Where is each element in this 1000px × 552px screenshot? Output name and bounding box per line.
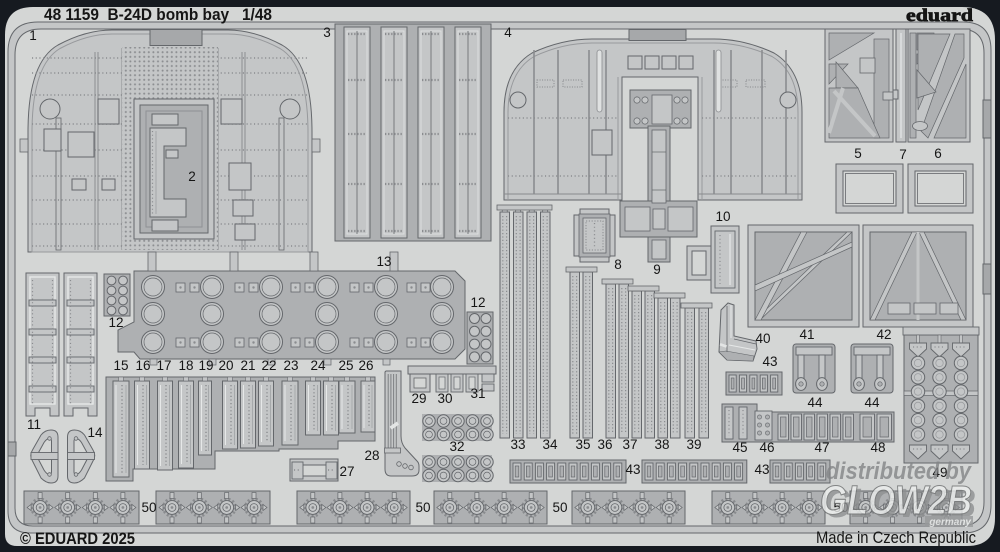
svg-text:21: 21 <box>240 358 255 373</box>
svg-text:33: 33 <box>510 437 525 452</box>
svg-text:1: 1 <box>29 28 37 43</box>
svg-text:2: 2 <box>188 169 196 184</box>
svg-text:9: 9 <box>653 262 661 277</box>
svg-text:27: 27 <box>339 464 354 479</box>
svg-text:43: 43 <box>625 462 640 477</box>
svg-text:43: 43 <box>762 354 777 369</box>
svg-text:24: 24 <box>310 358 326 373</box>
svg-text:41: 41 <box>799 327 814 342</box>
svg-text:germany: germany <box>928 517 971 528</box>
svg-text:48 1159 B-24D bomb bay 1/48: 48 1159 B-24D bomb bay 1/48 <box>44 5 272 24</box>
svg-text:11: 11 <box>27 417 41 432</box>
svg-text:32: 32 <box>449 439 464 454</box>
svg-text:8: 8 <box>614 257 622 272</box>
svg-text:43: 43 <box>754 462 769 477</box>
svg-text:37: 37 <box>622 437 637 452</box>
svg-text:12: 12 <box>108 315 123 330</box>
svg-text:48: 48 <box>870 440 885 455</box>
svg-text:Made in Czech Republic: Made in Czech Republic <box>816 528 976 547</box>
svg-text:36: 36 <box>597 437 612 452</box>
svg-text:6: 6 <box>934 146 942 161</box>
svg-text:10: 10 <box>715 209 730 224</box>
svg-text:26: 26 <box>358 358 373 373</box>
svg-text:© EDUARD 2025: © EDUARD 2025 <box>20 529 135 548</box>
svg-text:14: 14 <box>87 425 103 440</box>
svg-text:45: 45 <box>732 440 747 455</box>
svg-text:34: 34 <box>542 437 558 452</box>
svg-text:40: 40 <box>755 331 770 346</box>
svg-text:47: 47 <box>814 440 829 455</box>
svg-text:12: 12 <box>470 295 485 310</box>
svg-text:7: 7 <box>899 147 907 162</box>
svg-text:3: 3 <box>323 25 331 40</box>
svg-text:42: 42 <box>876 327 891 342</box>
svg-text:19: 19 <box>198 358 213 373</box>
svg-text:16: 16 <box>135 358 150 373</box>
svg-text:31: 31 <box>470 386 485 401</box>
svg-text:20: 20 <box>218 358 233 373</box>
svg-text:35: 35 <box>575 437 590 452</box>
svg-text:23: 23 <box>283 358 298 373</box>
svg-text:50: 50 <box>415 500 430 515</box>
svg-text:44: 44 <box>807 395 823 410</box>
svg-text:46: 46 <box>759 440 774 455</box>
svg-text:50: 50 <box>552 500 567 515</box>
svg-text:44: 44 <box>864 395 880 410</box>
svg-text:29: 29 <box>411 391 426 406</box>
svg-text:18: 18 <box>178 358 193 373</box>
svg-text:30: 30 <box>437 391 452 406</box>
svg-text:15: 15 <box>113 358 128 373</box>
svg-text:22: 22 <box>261 358 276 373</box>
svg-text:13: 13 <box>376 254 391 269</box>
svg-text:17: 17 <box>156 358 171 373</box>
svg-text:4: 4 <box>504 25 512 40</box>
svg-text:eduard: eduard <box>906 5 973 25</box>
svg-text:25: 25 <box>338 358 353 373</box>
svg-text:28: 28 <box>364 448 379 463</box>
svg-text:50: 50 <box>141 500 156 515</box>
svg-text:5: 5 <box>854 146 862 161</box>
svg-text:38: 38 <box>654 437 669 452</box>
svg-text:39: 39 <box>686 437 701 452</box>
